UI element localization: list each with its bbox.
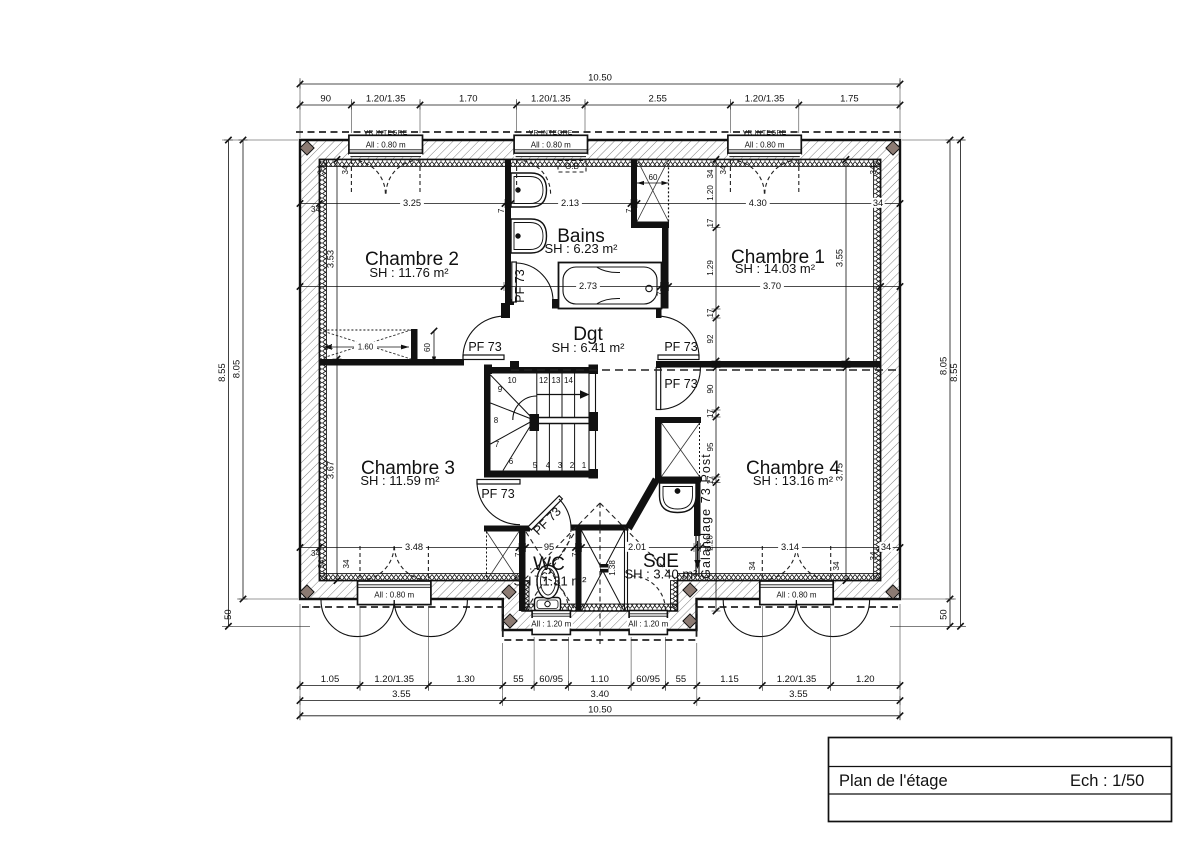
svg-text:10.50: 10.50 <box>588 704 612 715</box>
svg-text:3.40: 3.40 <box>591 689 610 700</box>
svg-text:1.20: 1.20 <box>856 674 875 685</box>
svg-text:8: 8 <box>494 416 499 425</box>
svg-text:3.55: 3.55 <box>835 249 845 267</box>
svg-text:All : 0.80 m: All : 0.80 m <box>374 591 414 600</box>
svg-text:1.29: 1.29 <box>706 260 715 276</box>
svg-text:50: 50 <box>939 609 950 620</box>
svg-text:O.B: O.B <box>565 162 579 171</box>
svg-text:1.20/1.35: 1.20/1.35 <box>531 94 571 105</box>
svg-text:SH : 6.41 m²: SH : 6.41 m² <box>552 340 626 355</box>
svg-text:1.20: 1.20 <box>706 185 715 201</box>
svg-text:3: 3 <box>558 461 563 470</box>
svg-text:3.48: 3.48 <box>405 542 423 552</box>
svg-text:34: 34 <box>719 165 728 174</box>
svg-text:92: 92 <box>706 334 715 343</box>
svg-text:3.55: 3.55 <box>392 689 411 700</box>
svg-text:9: 9 <box>498 385 503 394</box>
svg-text:PF 73: PF 73 <box>664 340 697 354</box>
svg-text:1.75: 1.75 <box>840 94 859 105</box>
svg-text:1.15: 1.15 <box>720 674 739 685</box>
svg-text:SH : 6.23 m²: SH : 6.23 m² <box>545 241 619 256</box>
svg-text:Plan de l'étage: Plan de l'étage <box>839 772 948 790</box>
svg-text:34: 34 <box>832 561 841 570</box>
svg-text:SH : 13.16 m²: SH : 13.16 m² <box>753 473 834 488</box>
svg-text:3.53: 3.53 <box>326 250 336 268</box>
svg-text:1.30: 1.30 <box>456 674 475 685</box>
svg-text:34: 34 <box>869 165 878 174</box>
svg-text:60/95: 60/95 <box>539 674 563 685</box>
svg-text:60/95: 60/95 <box>636 674 660 685</box>
svg-text:17: 17 <box>706 409 715 418</box>
svg-text:34: 34 <box>748 561 757 570</box>
svg-text:7: 7 <box>514 552 523 557</box>
svg-text:8.05: 8.05 <box>939 357 950 376</box>
svg-text:Ech : 1/50: Ech : 1/50 <box>1070 772 1144 790</box>
svg-text:All : 0.80 m: All : 0.80 m <box>366 141 406 150</box>
svg-text:SH : 3.40 m²: SH : 3.40 m² <box>625 567 699 582</box>
svg-text:1.70: 1.70 <box>459 94 478 105</box>
svg-text:3.25: 3.25 <box>403 198 421 208</box>
svg-text:2.73: 2.73 <box>579 281 597 291</box>
svg-text:2.55: 2.55 <box>648 94 667 105</box>
svg-text:50: 50 <box>223 609 234 620</box>
svg-text:10.50: 10.50 <box>588 73 612 84</box>
svg-text:90: 90 <box>706 384 715 393</box>
svg-text:3.67: 3.67 <box>326 461 336 479</box>
svg-text:34: 34 <box>341 165 350 174</box>
svg-text:All : 0.80 m: All : 0.80 m <box>745 141 785 150</box>
svg-text:SH : 11.76 m²: SH : 11.76 m² <box>369 265 449 280</box>
svg-text:Galandage 73 Post: Galandage 73 Post <box>699 453 713 579</box>
svg-text:95: 95 <box>706 442 715 451</box>
svg-text:13: 13 <box>552 376 561 385</box>
svg-text:1: 1 <box>582 461 587 470</box>
svg-text:34: 34 <box>311 205 320 214</box>
svg-text:5: 5 <box>533 461 538 470</box>
svg-text:SH : 11.59 m²: SH : 11.59 m² <box>360 473 440 488</box>
svg-text:60: 60 <box>423 343 432 352</box>
svg-text:All : 0.80 m: All : 0.80 m <box>531 141 571 150</box>
svg-text:34: 34 <box>317 559 326 568</box>
svg-text:4: 4 <box>546 461 551 470</box>
svg-text:34: 34 <box>881 542 891 552</box>
svg-text:7: 7 <box>571 552 580 557</box>
svg-text:60: 60 <box>649 173 658 182</box>
svg-text:PF 73: PF 73 <box>513 269 527 302</box>
svg-text:34: 34 <box>324 343 333 352</box>
svg-text:WC: WC <box>533 554 565 575</box>
svg-text:All : 1.20 m: All : 1.20 m <box>531 619 571 628</box>
svg-text:34: 34 <box>869 551 878 560</box>
svg-text:SH : 1.31 m²: SH : 1.31 m² <box>514 574 588 589</box>
svg-text:All : 1.20 m: All : 1.20 m <box>628 619 668 628</box>
svg-text:SH : 14.03 m²: SH : 14.03 m² <box>735 261 816 276</box>
svg-text:4.30: 4.30 <box>749 198 767 208</box>
svg-text:34: 34 <box>706 169 715 178</box>
svg-text:6: 6 <box>509 457 514 466</box>
svg-text:17: 17 <box>706 308 715 317</box>
svg-text:12: 12 <box>539 376 548 385</box>
svg-text:7: 7 <box>412 342 417 351</box>
svg-text:1.60: 1.60 <box>358 343 374 352</box>
svg-text:VR INTEGRE: VR INTEGRE <box>364 130 408 137</box>
svg-text:1.20/1.35: 1.20/1.35 <box>745 94 785 105</box>
svg-text:VR INTEGRE: VR INTEGRE <box>529 130 573 137</box>
svg-text:10: 10 <box>704 546 712 553</box>
svg-text:90: 90 <box>320 94 331 105</box>
svg-text:PF 73: PF 73 <box>664 377 697 391</box>
svg-text:14: 14 <box>564 376 573 385</box>
svg-text:8.55: 8.55 <box>217 363 228 382</box>
svg-text:1.38: 1.38 <box>608 560 617 576</box>
svg-text:1.20/1.35: 1.20/1.35 <box>374 674 414 685</box>
svg-text:17: 17 <box>706 475 715 484</box>
svg-text:1.20/1.35: 1.20/1.35 <box>366 94 406 105</box>
svg-text:8.55: 8.55 <box>949 363 960 382</box>
svg-text:7: 7 <box>656 291 665 296</box>
svg-text:8.05: 8.05 <box>232 360 243 379</box>
svg-text:34: 34 <box>873 198 883 208</box>
svg-text:1.20/1.35: 1.20/1.35 <box>777 674 817 685</box>
svg-text:PF 73: PF 73 <box>481 487 514 501</box>
svg-text:3.70: 3.70 <box>763 281 781 291</box>
svg-text:2: 2 <box>570 461 575 470</box>
svg-text:PF 73: PF 73 <box>468 340 501 354</box>
svg-text:34: 34 <box>317 165 326 174</box>
svg-text:7: 7 <box>495 440 500 449</box>
svg-text:17: 17 <box>706 218 715 227</box>
svg-text:1.10: 1.10 <box>590 674 609 685</box>
svg-text:All : 0.80 m: All : 0.80 m <box>776 591 816 600</box>
svg-text:10: 10 <box>508 376 517 385</box>
svg-text:7: 7 <box>497 208 506 213</box>
svg-text:3.55: 3.55 <box>789 689 808 700</box>
svg-text:34: 34 <box>342 559 351 568</box>
svg-text:55: 55 <box>513 674 524 685</box>
svg-text:1.05: 1.05 <box>321 674 340 685</box>
svg-text:VR INTEGRE: VR INTEGRE <box>743 130 787 137</box>
svg-text:55: 55 <box>676 674 687 685</box>
svg-text:7: 7 <box>625 208 634 213</box>
svg-text:95: 95 <box>544 542 554 552</box>
svg-text:34: 34 <box>311 549 320 558</box>
svg-text:3.14: 3.14 <box>781 542 799 552</box>
svg-text:2.13: 2.13 <box>561 198 579 208</box>
